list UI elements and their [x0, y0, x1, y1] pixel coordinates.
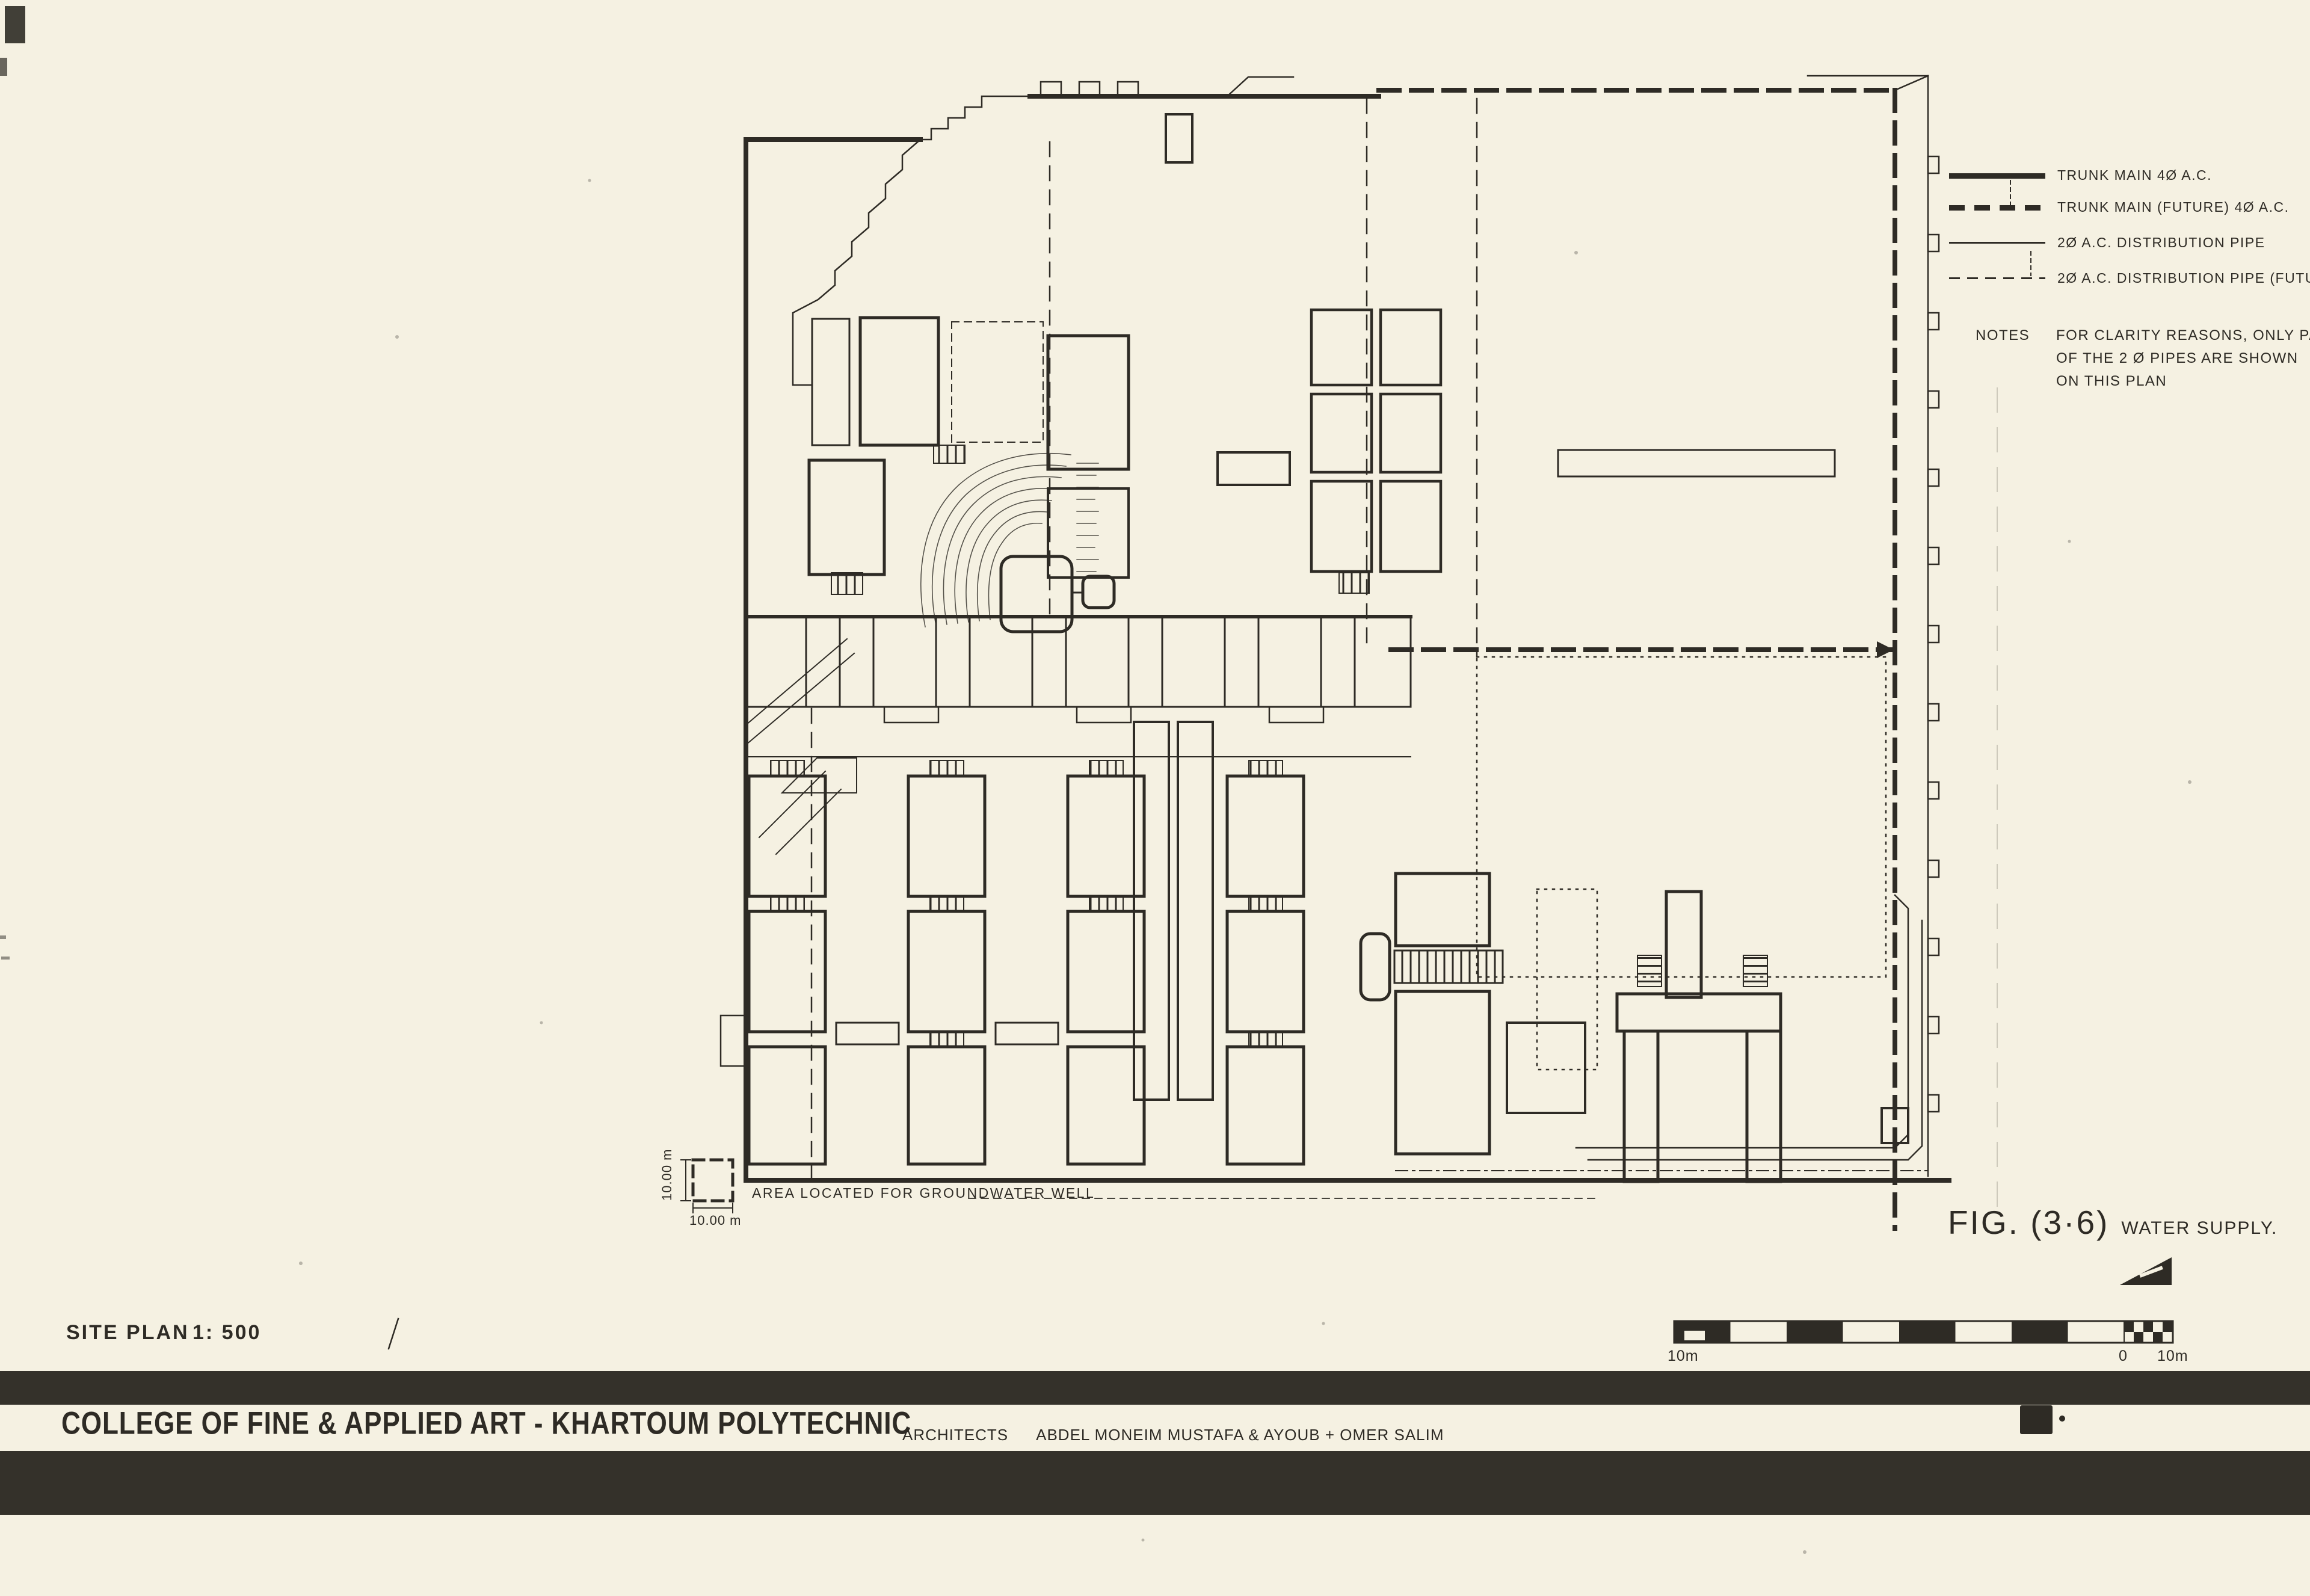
- drawing-type-label: SITE PLAN: [66, 1321, 189, 1345]
- scale-bar-zero-label: 0: [2119, 1348, 2128, 1365]
- dimension-vertical: 10.00 m: [659, 1149, 675, 1201]
- rounded-building: [1001, 556, 1114, 632]
- dimension-horizontal: 10.00 m: [689, 1213, 742, 1228]
- workshop-compound: [1361, 873, 1908, 1154]
- legend-item-label: 2Ø A.C. DISTRIBUTION PIPE: [2057, 235, 2265, 251]
- figure-caption: FIG. (3·6)WATER SUPPLY.: [1948, 1203, 2278, 1242]
- yard-walls: [1396, 895, 1928, 1171]
- dormitory-slabs: [1134, 722, 1213, 1100]
- upper-left-buildings: [809, 114, 1192, 594]
- future-building-zones: [1477, 657, 1886, 1070]
- architects-label: ARCHITECTS: [902, 1426, 1008, 1444]
- legend-swatch-distribution-pipe: [1949, 242, 2045, 244]
- right-boundary-wall: [1808, 76, 1939, 1176]
- north-arrow-icon: [2120, 1257, 2172, 1285]
- groundwater-well-label: AREA LOCATED FOR GROUNDWATER WELL: [752, 1185, 1095, 1201]
- drawing-scale-value: 1: 500: [192, 1321, 261, 1345]
- architects-row: ARCHITECTSABDEL MONEIM MUSTAFA & AYOUB +…: [902, 1426, 1444, 1444]
- legend-swatch-distribution-pipe-future: [1949, 277, 2045, 279]
- entrance-walkway: [721, 639, 857, 1066]
- notes-line: ON THIS PLAN: [2056, 373, 2167, 390]
- studio-grid: [749, 776, 1304, 1164]
- scale-bar: [1674, 1321, 2173, 1343]
- project-title: COLLEGE OF FINE & APPLIED ART - KHARTOUM…: [61, 1405, 911, 1441]
- trunk-main-lines: [746, 96, 1949, 1180]
- legend-swatch-trunk-main: [1949, 173, 2045, 179]
- legend-item-label: TRUNK MAIN (FUTURE) 4Ø A.C.: [2057, 199, 2290, 215]
- pipe-arrowhead: [1877, 641, 1894, 658]
- cross-building: [1617, 892, 1781, 1182]
- scale-bar-left-label: 10m: [1668, 1348, 1699, 1365]
- legend-swatch-trunk-main-future: [1949, 205, 2045, 211]
- notes-line: OF THE 2 Ø PIPES ARE SHOWN: [2056, 350, 2299, 367]
- paired-square-buildings: [1218, 310, 1835, 593]
- studio-band: [746, 617, 1411, 723]
- legend-item-label: 2Ø A.C. DISTRIBUTION PIPE (FUTURE): [2057, 270, 2310, 286]
- notes-line: FOR CLARITY REASONS, ONLY PART: [2056, 327, 2310, 344]
- drawing-sheet: TRUNK MAIN 4Ø A.C. TRUNK MAIN (FUTURE) 4…: [0, 0, 2310, 1596]
- groundwater-well-area: [693, 1160, 733, 1201]
- figure-title: WATER SUPPLY.: [2121, 1218, 2278, 1238]
- scale-bar-right-label: 10m: [2157, 1348, 2188, 1365]
- title-block-mark: [2020, 1405, 2065, 1434]
- stray-pen-mark: [389, 1319, 398, 1349]
- studio-link-bars: [746, 757, 1411, 1044]
- legend-ticks: [2010, 180, 2031, 276]
- notes-heading: NOTES: [1976, 327, 2030, 344]
- future-trunk-main-lines: [1379, 90, 1895, 1228]
- figure-number: FIG. (3·6): [1948, 1204, 2109, 1241]
- architects-names: ABDEL MONEIM MUSTAFA & AYOUB + OMER SALI…: [1036, 1426, 1444, 1444]
- studio-connector-hatches: [771, 760, 1283, 1047]
- legend-item-label: TRUNK MAIN 4Ø A.C.: [2057, 167, 2212, 183]
- site-plan-drawing: [0, 0, 2310, 1596]
